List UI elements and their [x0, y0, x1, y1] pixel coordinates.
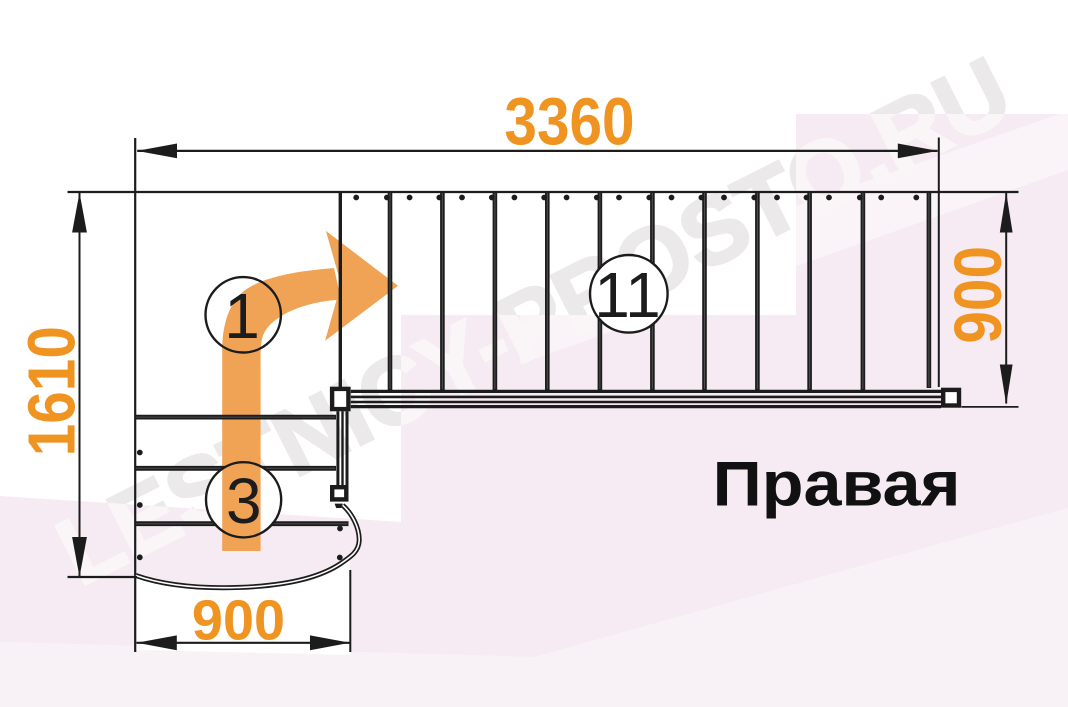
svg-text:3: 3 — [226, 465, 262, 537]
svg-text:1: 1 — [224, 280, 260, 352]
svg-text:3360: 3360 — [504, 85, 634, 159]
svg-text:11: 11 — [594, 259, 660, 331]
svg-text:1610: 1610 — [15, 326, 89, 456]
svg-text:900: 900 — [942, 246, 1016, 344]
svg-text:900: 900 — [192, 588, 285, 652]
svg-text:Правая: Правая — [713, 448, 961, 519]
